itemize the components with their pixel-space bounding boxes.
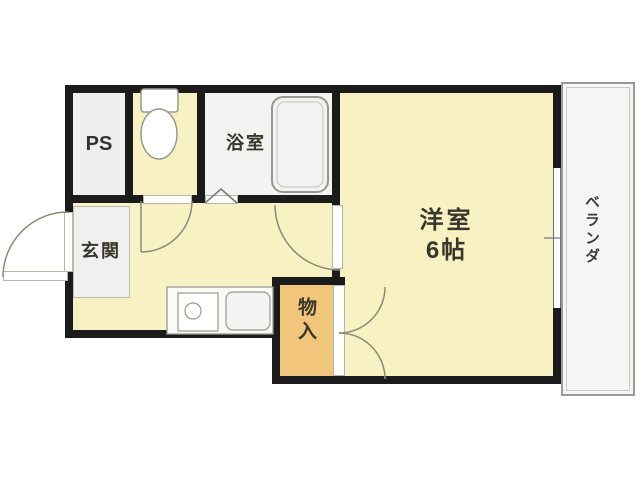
room-label-western-room: 洋室 xyxy=(340,209,553,233)
toilet-floor xyxy=(133,93,197,195)
entrance-door-arc xyxy=(3,212,68,277)
room-label-veranda: ベランダ xyxy=(584,194,599,298)
floor-plan: PS 浴室 玄関 洋室 6帖 物入 ベランダ xyxy=(0,0,640,480)
room-label-storage: 物入 xyxy=(296,297,315,377)
wall xyxy=(197,93,205,203)
wall xyxy=(272,277,280,384)
toilet-door-slab xyxy=(143,195,192,204)
wall xyxy=(553,85,561,168)
wall xyxy=(65,330,280,338)
entrance-door-leaf xyxy=(3,271,68,281)
wall xyxy=(272,376,561,384)
room-label-bathroom: 浴室 xyxy=(205,134,287,152)
bathroom-door-slab xyxy=(205,195,238,204)
wall xyxy=(332,85,340,205)
wall xyxy=(65,195,143,203)
room-label-entrance: 玄関 xyxy=(71,242,131,260)
wall xyxy=(65,85,561,93)
room-label-ps: PS xyxy=(73,134,125,154)
wall xyxy=(238,195,340,203)
room-size-western-room: 6帖 xyxy=(340,239,553,263)
wall xyxy=(272,277,345,285)
wall xyxy=(65,272,73,338)
wall xyxy=(553,308,561,384)
storage-door-slab xyxy=(333,285,345,376)
wall xyxy=(65,85,73,212)
wall xyxy=(125,93,133,203)
western-room-floor xyxy=(340,93,553,376)
window xyxy=(553,168,561,308)
